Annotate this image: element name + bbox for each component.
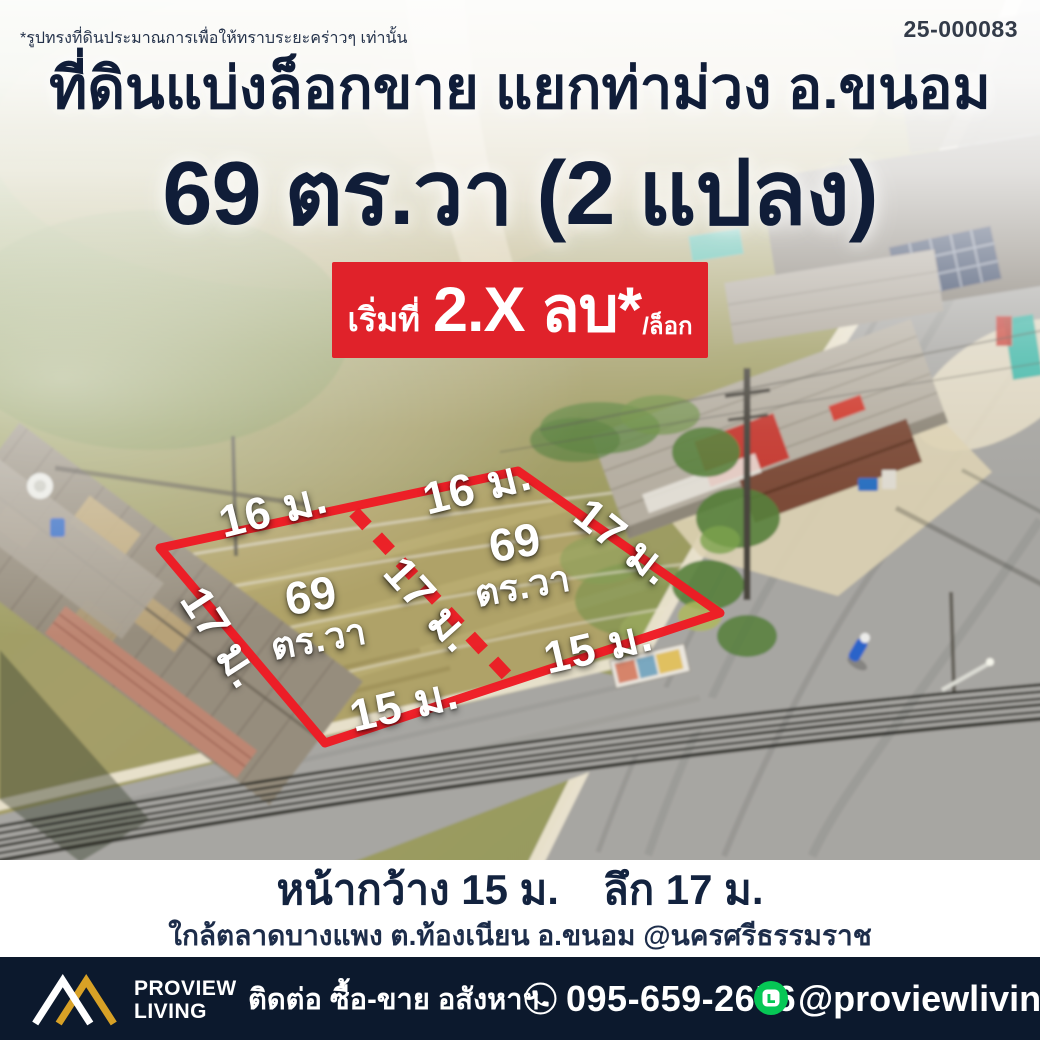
footer-bar: PROVIEW LIVING ติดต่อ ซื้อ-ขาย อสังหาฯ 0… (0, 957, 1040, 1040)
price-badge: เริ่มที่ 2.X ลบ* /ล็อก (332, 262, 708, 358)
listing-ref-number: 25-000083 (904, 16, 1019, 43)
line-id: @proviewliving (798, 957, 1040, 1040)
dimensions-line: หน้ากว้าง 15 ม. ลึก 17 ม. (276, 864, 763, 917)
brand-line2: LIVING (134, 1000, 237, 1023)
page-title: ที่ดินแบ่งล็อกขาย แยกท่าม่วง อ.ขนอม (0, 50, 1040, 128)
contact-label: ติดต่อ ซื้อ-ขาย อสังหาฯ (248, 957, 539, 1040)
brand-name: PROVIEW LIVING (134, 977, 237, 1023)
price-per-lot: /ล็อก (642, 306, 692, 345)
frontage-text: หน้ากว้าง 15 ม. (276, 864, 559, 917)
plot-boundary-overlay (0, 0, 1040, 860)
line-icon (754, 981, 788, 1015)
location-text: ใกล้ตลาดบางแพง ต.ท้องเนียน อ.ขนอม @นครศร… (168, 919, 871, 953)
brand-line1: PROVIEW (134, 977, 237, 1000)
plot-area-label-right: 69 ตร.วา (463, 511, 572, 612)
proview-mountains-logo (24, 969, 126, 1027)
phone-icon (524, 982, 557, 1015)
depth-text: ลึก 17 ม. (603, 864, 764, 917)
page-subtitle: 69 ตร.วา (2 แปลง) (0, 136, 1040, 253)
info-bar: หน้ากว้าง 15 ม. ลึก 17 ม. ใกล้ตลาดบางแพง… (0, 860, 1040, 957)
property-poster: 16 ม. 16 ม. 17 ม. 17 ม. 17 ม. 15 ม. 15 ม… (0, 0, 1040, 1040)
plot-area-label-left: 69 ตร.วา (259, 564, 368, 665)
price-value: 2.X ลบ* (433, 279, 641, 342)
price-prefix: เริ่มที่ (347, 293, 420, 346)
disclaimer-note: *รูปทรงที่ดินประมาณการเพื่อให้ทราบระยะคร… (20, 26, 407, 51)
